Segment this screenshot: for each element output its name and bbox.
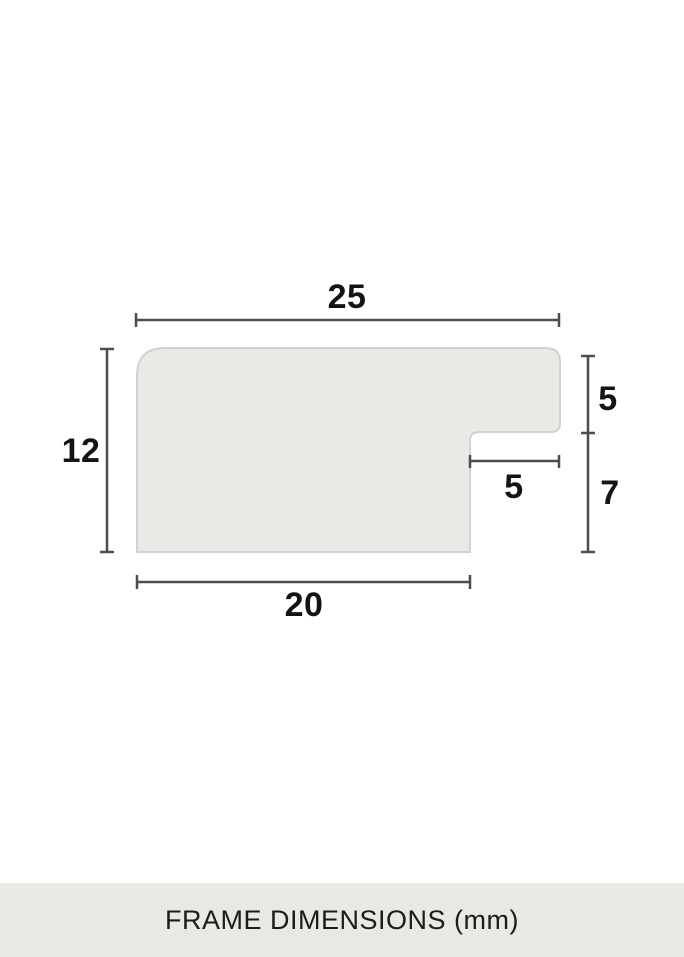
dimension-label-bottom-width: 20 bbox=[285, 588, 324, 622]
dimension-line-notch-width bbox=[470, 455, 559, 468]
caption-bar: FRAME DIMENSIONS (mm) bbox=[0, 883, 684, 957]
dimension-label-top-width: 25 bbox=[328, 280, 367, 314]
frame-dimension-diagram: 25 12 5 5 7 20 FRAME DIMENSIONS (mm) bbox=[0, 0, 684, 957]
frame-profile-drawing bbox=[0, 0, 684, 957]
frame-profile-shape bbox=[137, 348, 560, 552]
dimension-label-right-upper-height: 5 bbox=[598, 382, 617, 416]
dimension-label-left-height: 12 bbox=[62, 434, 101, 468]
dimension-line-left-height bbox=[100, 349, 114, 552]
dimension-line-right-heights bbox=[581, 356, 595, 552]
dimension-label-right-lower-height: 7 bbox=[600, 476, 619, 510]
caption-text: FRAME DIMENSIONS (mm) bbox=[165, 905, 519, 936]
dimension-label-notch-width: 5 bbox=[504, 470, 523, 504]
